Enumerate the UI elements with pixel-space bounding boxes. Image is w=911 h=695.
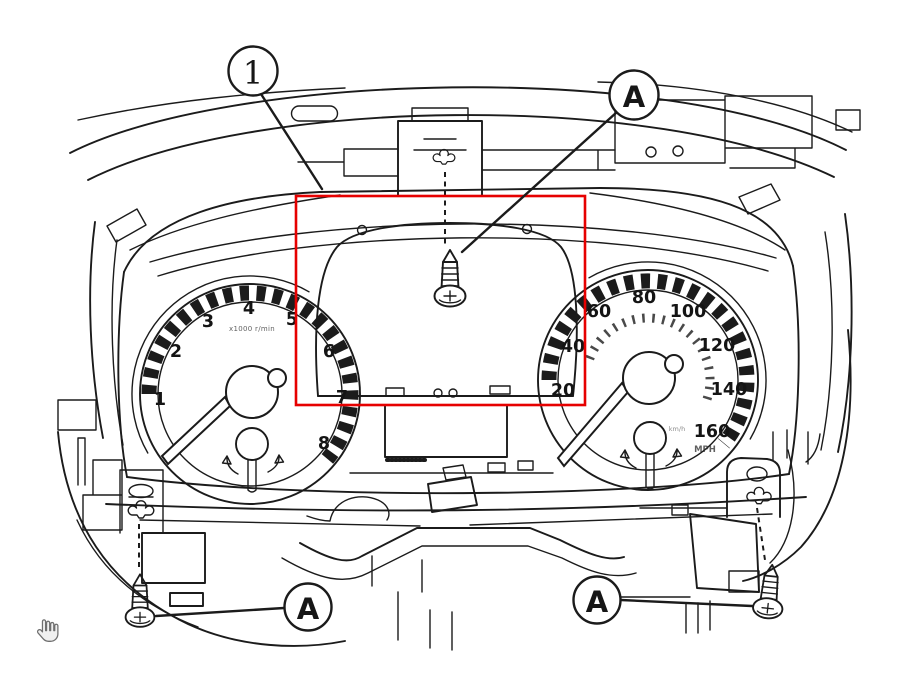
tachometer-surround-arc (132, 276, 309, 453)
speed-unit-mph: MPH (694, 445, 716, 455)
speed-number: 100 (670, 302, 707, 322)
callout-screw-a-bottom-left[interactable]: A (285, 584, 332, 631)
speed-number: 120 (699, 336, 736, 356)
speed-number: 160 (694, 422, 731, 442)
callout-part-1-label: 1 (243, 54, 263, 92)
tachometer-gauge: 1 2 3 4 5 6 7 8 x1000 r/min (140, 284, 360, 504)
callout-a-label: A (297, 592, 320, 626)
speed-number: 60 (587, 302, 611, 322)
tach-number: 8 (318, 434, 330, 454)
tachometer-needle (162, 397, 230, 464)
top-center-bracket (398, 121, 482, 196)
speed-number: 40 (561, 337, 585, 357)
instrument-cluster-diagram: 1 2 3 4 5 6 7 8 x1000 r/min 20 40 60 80 … (0, 0, 911, 695)
hood-vent-right (739, 184, 780, 214)
speedometer-gauge: 20 40 60 80 100 120 140 160 MPH km/h (538, 270, 758, 490)
screw-hole-marker-top (433, 149, 455, 164)
callout-screw-a-top[interactable]: A (610, 71, 659, 120)
tach-unit-label: x1000 r/min (229, 325, 275, 333)
lower-housing (58, 330, 851, 650)
callout-part-1[interactable]: 1 (229, 47, 278, 96)
tach-number: 3 (202, 312, 214, 332)
screw-hole-marker-bottom-right (747, 487, 771, 503)
speed-number: 20 (551, 381, 575, 401)
screw-hole-marker-bottom-left (128, 501, 153, 518)
connector (428, 477, 477, 512)
callout-a-label: A (623, 80, 646, 114)
speed-unit-kmh: km/h (669, 425, 685, 433)
tach-number: 4 (243, 299, 255, 319)
upper-mounting-assembly (292, 96, 861, 196)
speed-number: 80 (632, 288, 656, 308)
callout-a-label: A (586, 585, 609, 619)
diagram-canvas: 1 2 3 4 5 6 7 8 x1000 r/min 20 40 60 80 … (0, 0, 911, 695)
screw-center (435, 250, 466, 307)
callouts: 1 A A A (156, 47, 752, 631)
top-left-slot (292, 106, 338, 121)
speed-number: 140 (711, 380, 748, 400)
speedometer-knob (634, 422, 666, 454)
hood-vent-left (107, 209, 146, 242)
display-lower-housing (385, 405, 507, 457)
tach-number: 1 (154, 390, 166, 410)
tachometer-knob (236, 428, 268, 460)
tach-number: 6 (323, 342, 335, 362)
tach-number: 2 (170, 342, 182, 362)
callout-screw-a-bottom-right[interactable]: A (574, 577, 621, 624)
hand-cursor-icon (38, 620, 58, 641)
